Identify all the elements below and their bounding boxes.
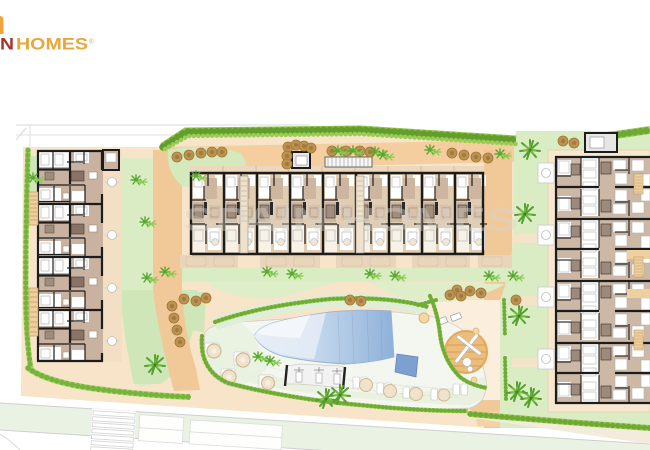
svg-text:N: N	[0, 35, 14, 54]
svg-text:HOMES: HOMES	[16, 35, 88, 54]
svg-text:®: ®	[89, 39, 94, 46]
svg-text:SPAIN HOMES: SPAIN HOMES	[183, 201, 518, 238]
